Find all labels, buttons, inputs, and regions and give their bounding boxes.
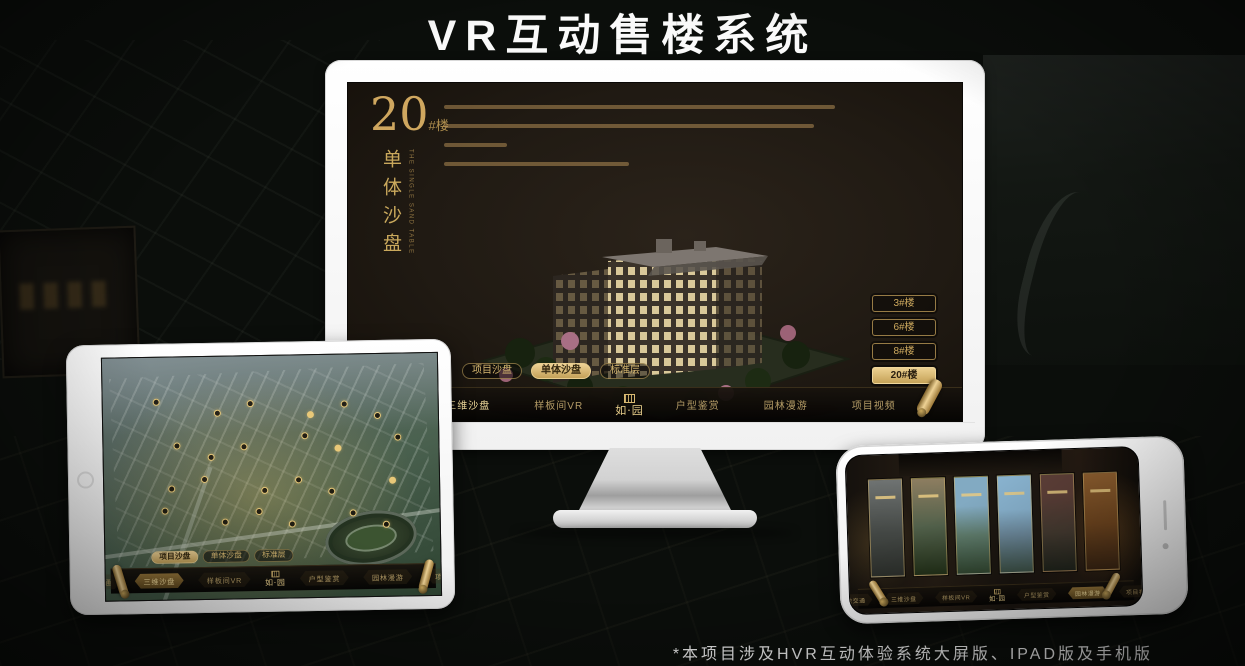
building-badge[interactable] <box>289 520 296 527</box>
description-line <box>444 124 814 128</box>
nav-item-floorplans[interactable]: 户型鉴赏 <box>300 570 349 586</box>
tablet-app-screen: 项目沙盘 单体沙盘 标准层 区位交通 三维沙盘 样板间VR 如·园 户型鉴赏 园… <box>101 352 442 602</box>
nav-item-showroom-vr[interactable]: 样板间VR <box>522 394 595 415</box>
tablet-mode-tabs: 项目沙盘 单体沙盘 标准层 <box>151 549 293 564</box>
sandtable-mode-tabs: 项目沙盘 单体沙盘 标准层 <box>462 363 650 379</box>
tab-standard-floor[interactable]: 标准层 <box>254 549 293 562</box>
brand-logo: 如·园 <box>615 394 644 416</box>
page-title: VR互动售楼系统 <box>0 1 1245 63</box>
tablet-device: 项目沙盘 单体沙盘 标准层 区位交通 三维沙盘 样板间VR 如·园 户型鉴赏 园… <box>66 339 456 616</box>
building-badge[interactable] <box>153 399 160 406</box>
scene-card[interactable] <box>954 475 991 574</box>
building-badge[interactable] <box>307 411 314 418</box>
building-badge[interactable] <box>383 521 390 528</box>
scene-card-strip <box>868 471 1120 577</box>
tab-project-sandtable[interactable]: 项目沙盘 <box>151 551 198 564</box>
floor-button-8[interactable]: 8#楼 <box>872 343 936 360</box>
building-badge[interactable] <box>329 488 336 495</box>
scene-card[interactable] <box>997 474 1034 573</box>
scene-card[interactable] <box>1040 473 1077 572</box>
building-badge[interactable] <box>207 454 214 461</box>
monitor-stand <box>577 448 733 514</box>
phone-app-screen: 区位交通 三维沙盘 样板间VR 如·园 户型鉴赏 园林漫游 项目视频 <box>845 446 1144 615</box>
subtitle-english: THE SINGLE SAND TABLE <box>408 149 415 255</box>
building-badge[interactable] <box>262 487 269 494</box>
nav-item-floorplans[interactable]: 户型鉴赏 <box>1017 587 1057 600</box>
brand-logo-text: 如·园 <box>615 405 644 416</box>
building-badge[interactable] <box>255 508 262 515</box>
screen-subtitle: 单体沙盘 THE SINGLE SAND TABLE <box>378 149 417 290</box>
building-badge[interactable] <box>301 433 308 440</box>
nav-item-3d-sandtable[interactable]: 三维沙盘 <box>884 591 924 604</box>
nav-item-showroom-vr[interactable]: 样板间VR <box>198 572 251 588</box>
building-badge[interactable] <box>213 410 220 417</box>
monitor-shadow <box>515 528 795 538</box>
nav-item-garden-tour[interactable]: 园林漫游 <box>363 569 412 585</box>
tab-standard-floor[interactable]: 标准层 <box>600 363 650 379</box>
seal-icon <box>271 571 279 578</box>
building-badge[interactable] <box>241 443 248 450</box>
scene-card[interactable] <box>1083 471 1120 570</box>
scene-card[interactable] <box>911 477 948 576</box>
brand-logo-text: 如·园 <box>989 595 1006 602</box>
nav-item-project-video[interactable]: 项目视频 <box>1119 584 1143 597</box>
floor-selector: 3#楼 6#楼 8#楼 20#楼 <box>872 295 936 384</box>
background-river <box>1005 184 1114 366</box>
monitor-base <box>553 510 757 528</box>
subtitle-vertical: 单体沙盘 <box>378 149 405 290</box>
seal-icon <box>994 589 1001 594</box>
building-badge[interactable] <box>335 444 342 451</box>
building-badge[interactable] <box>201 475 208 482</box>
phone-device: 区位交通 三维沙盘 样板间VR 如·园 户型鉴赏 园林漫游 项目视频 <box>835 436 1188 625</box>
brand-logo: 如·园 <box>989 588 1006 601</box>
panorama-ceiling <box>898 449 1062 476</box>
tab-single-sandtable[interactable]: 单体沙盘 <box>203 550 250 563</box>
nav-item-showroom-vr[interactable]: 样板间VR <box>935 590 978 604</box>
building-badge[interactable] <box>168 486 175 493</box>
scene-card[interactable] <box>868 478 905 577</box>
sandtable-3d-model[interactable] <box>458 161 868 422</box>
building-badge[interactable] <box>341 400 348 407</box>
floor-button-6[interactable]: 6#楼 <box>872 319 936 336</box>
phone-camera <box>1162 543 1168 549</box>
nav-item-3d-sandtable[interactable]: 三维沙盘 <box>134 573 183 589</box>
building-number: 20 <box>370 87 429 141</box>
building-badge[interactable] <box>174 442 181 449</box>
brand-logo: 如·园 <box>265 571 286 587</box>
footnote: *本项目涉及HVR互动体验系统大屏版、IPAD版及手机版 <box>673 640 1153 664</box>
building-badge[interactable] <box>247 400 254 407</box>
background-map-lines <box>0 40 380 360</box>
floor-button-3[interactable]: 3#楼 <box>872 295 936 312</box>
building-badge[interactable] <box>395 433 402 440</box>
building-badge[interactable] <box>222 519 229 526</box>
nav-item-project-video[interactable]: 项目视频 <box>840 394 908 415</box>
building-title: 20#楼 <box>370 91 449 137</box>
seal-icon <box>624 394 635 403</box>
building-badge[interactable] <box>161 508 168 515</box>
nav-item-floorplans[interactable]: 户型鉴赏 <box>664 394 732 415</box>
nav-item-garden-tour[interactable]: 园林漫游 <box>752 394 820 415</box>
building-badge[interactable] <box>389 477 396 484</box>
building-badge[interactable] <box>349 509 356 516</box>
background-aerial-photo <box>983 55 1245 365</box>
building-badge[interactable] <box>295 476 302 483</box>
tab-single-sandtable[interactable]: 单体沙盘 <box>531 363 591 379</box>
description-line <box>444 105 835 109</box>
floor-button-20[interactable]: 20#楼 <box>872 367 936 384</box>
building-badge[interactable] <box>374 412 381 419</box>
tab-project-sandtable[interactable]: 项目沙盘 <box>462 363 522 379</box>
description-line <box>444 143 507 147</box>
brand-logo-text: 如·园 <box>265 579 286 587</box>
